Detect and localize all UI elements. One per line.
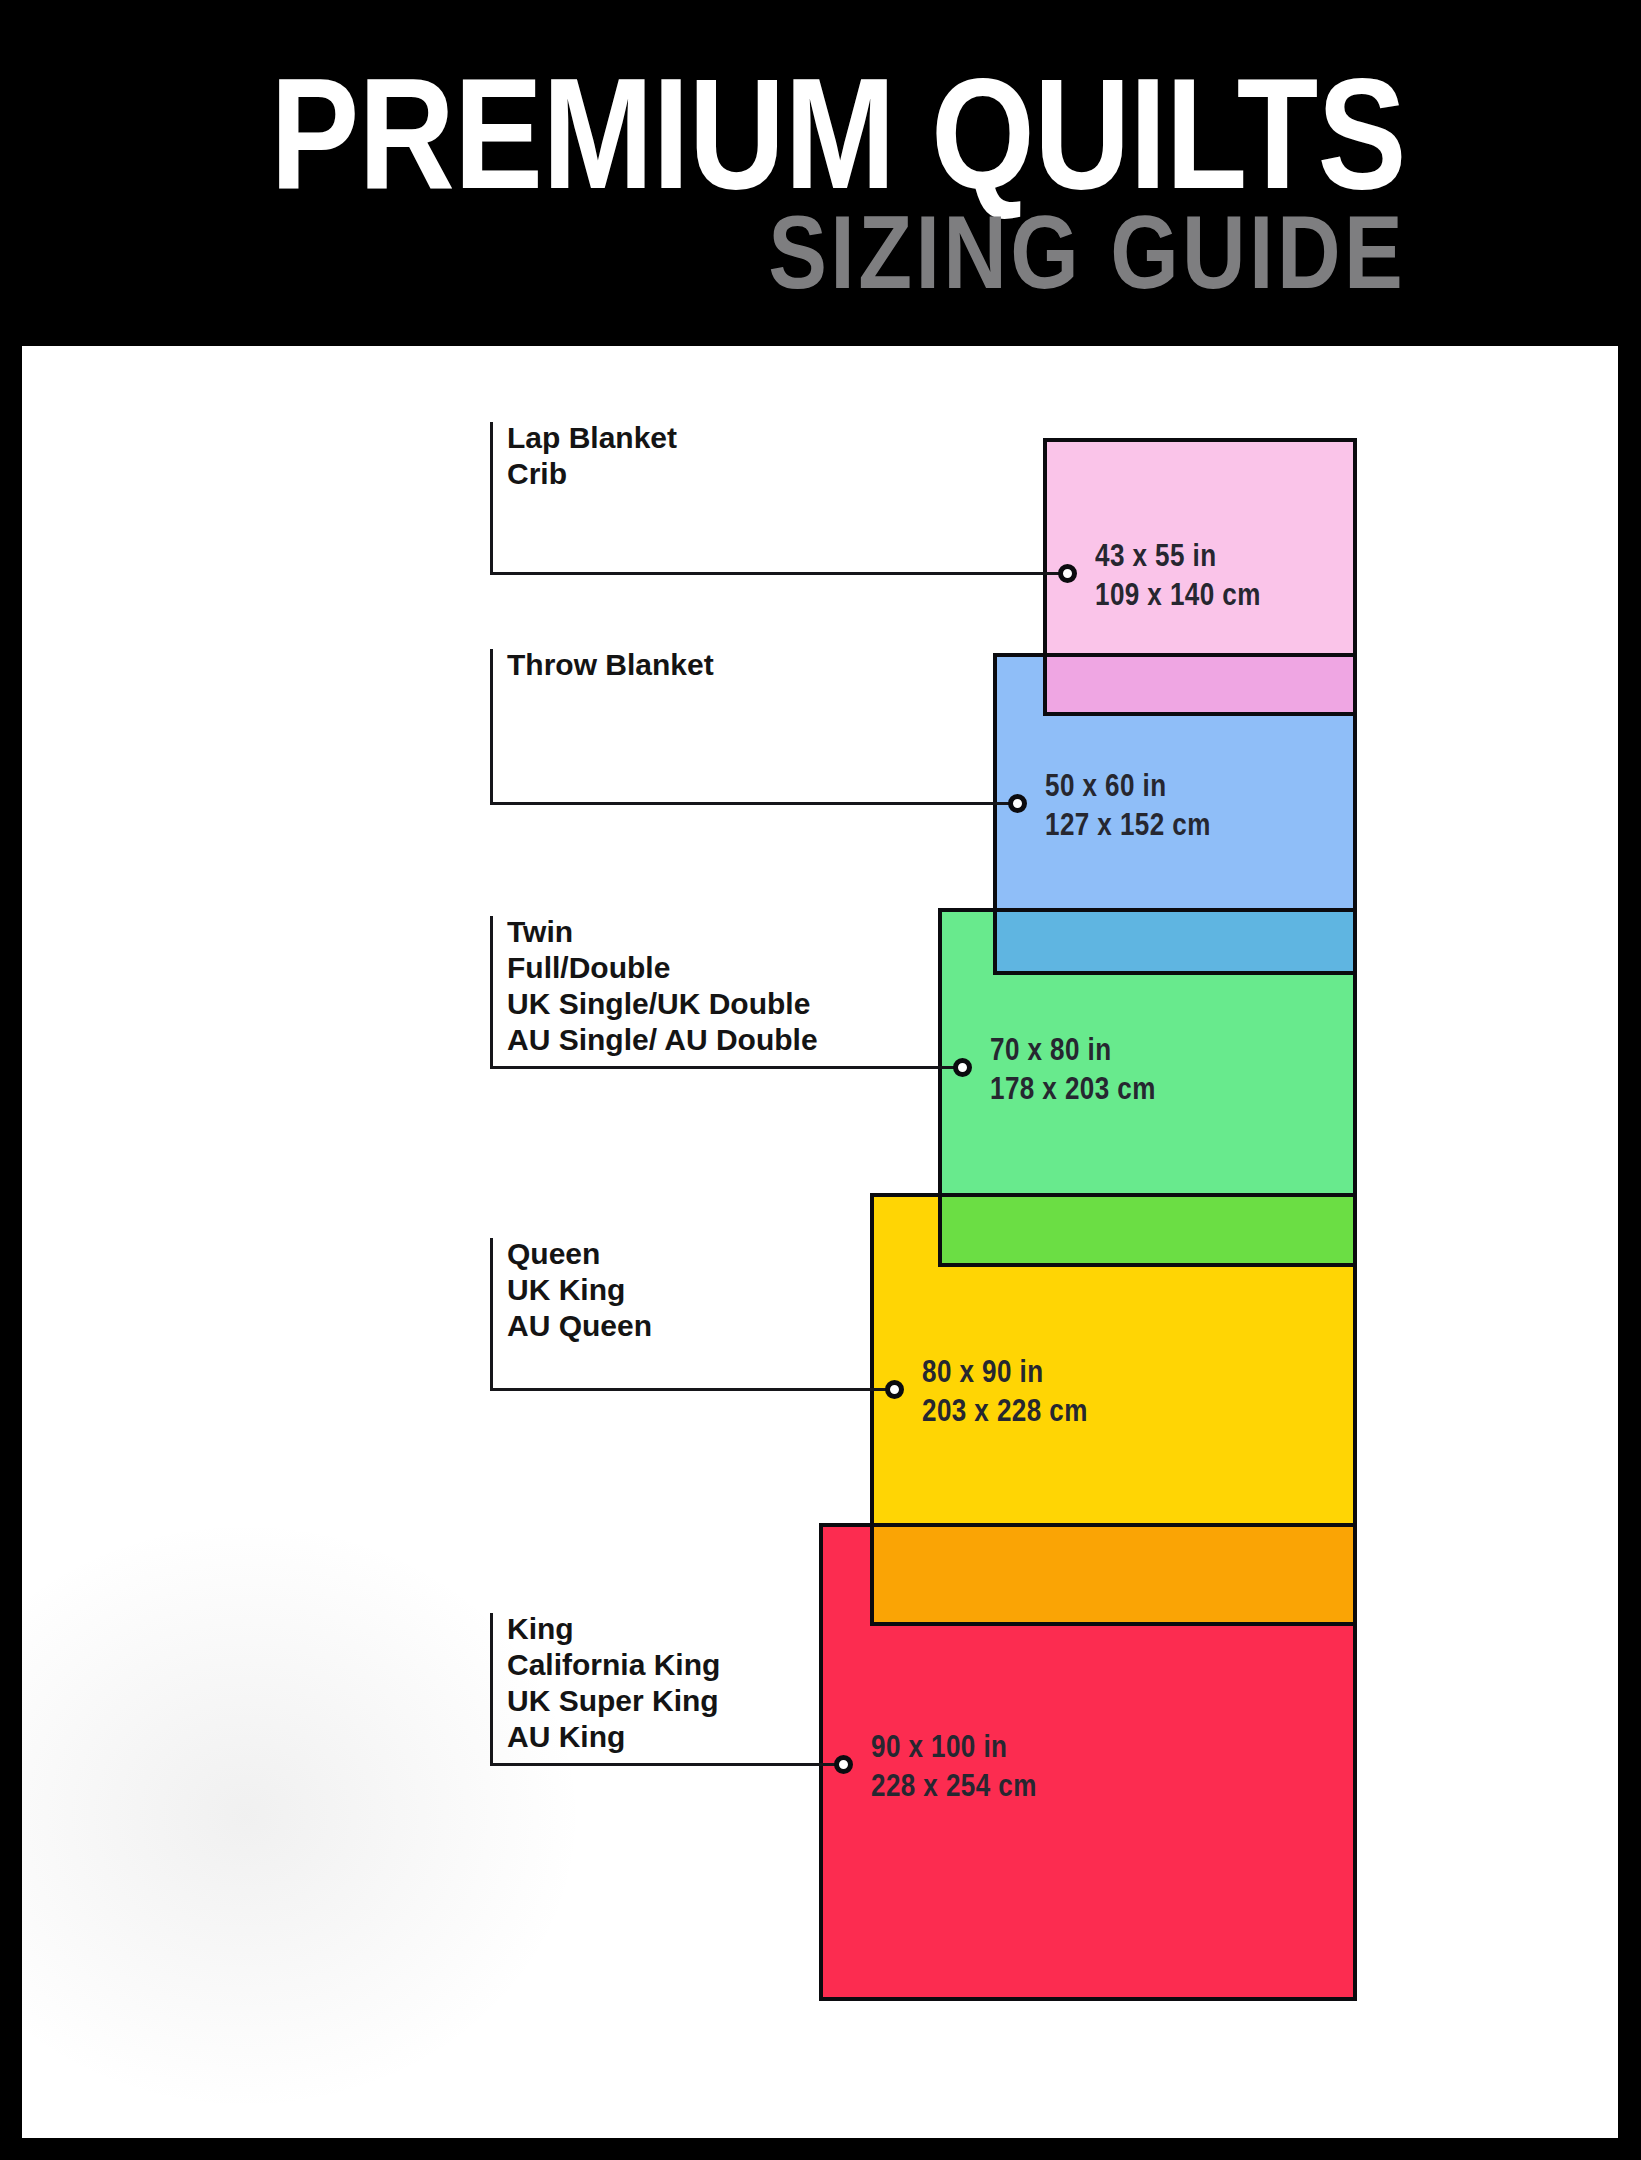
queen-dimensions-label: 80 x 90 in203 x 228 cm: [922, 1352, 1088, 1430]
throw-leader-line-horizontal: [490, 802, 1017, 805]
lap-leader-line-horizontal: [490, 572, 1067, 575]
twin-leader-dot-icon: [953, 1058, 972, 1077]
twin-name-label-line: Twin: [507, 914, 818, 950]
throw-dimensions-label: 50 x 60 in127 x 152 cm: [1045, 766, 1211, 844]
quilt-size-diagram: Lap BlanketCrib43 x 55 in109 x 140 cmThr…: [0, 0, 1641, 2160]
king-name-label: KingCalifornia KingUK Super KingAU King: [507, 1611, 720, 1755]
king-leader-dot-icon: [834, 1755, 853, 1774]
twin-dimensions-label: 70 x 80 in178 x 203 cm: [990, 1030, 1156, 1108]
lap-name-label: Lap BlanketCrib: [507, 420, 677, 492]
queen-name-label-line: Queen: [507, 1236, 652, 1272]
twin-name-label-line: Full/Double: [507, 950, 818, 986]
queen-dimensions-cm: 203 x 228 cm: [922, 1391, 1088, 1430]
twin-name-label-line: UK Single/UK Double: [507, 986, 818, 1022]
throw-dimensions-cm: 127 x 152 cm: [1045, 805, 1211, 844]
king-name-label-line: King: [507, 1611, 720, 1647]
throw-leader-line-vertical: [490, 649, 493, 805]
twin-dimensions-inches: 70 x 80 in: [990, 1030, 1156, 1069]
king-name-label-line: California King: [507, 1647, 720, 1683]
throw-name-label: Throw Blanket: [507, 647, 714, 683]
infographic-page: PREMIUM QUILTS SIZING GUIDE Lap BlanketC…: [0, 0, 1641, 2160]
twin-name-label: TwinFull/DoubleUK Single/UK DoubleAU Sin…: [507, 914, 818, 1058]
lap-dimensions-label: 43 x 55 in109 x 140 cm: [1095, 536, 1261, 614]
lap-dimensions-cm: 109 x 140 cm: [1095, 575, 1261, 614]
queen-leader-dot-icon: [885, 1380, 904, 1399]
twin-name-label-line: AU Single/ AU Double: [507, 1022, 818, 1058]
king-leader-line-vertical: [490, 1613, 493, 1766]
throw-name-label-line: Throw Blanket: [507, 647, 714, 683]
king-dimensions-cm: 228 x 254 cm: [871, 1766, 1037, 1805]
lap-leader-dot-icon: [1058, 564, 1077, 583]
queen-leader-line-vertical: [490, 1238, 493, 1391]
king-name-label-line: AU King: [507, 1719, 720, 1755]
queen-leader-line-horizontal: [490, 1388, 894, 1391]
king-name-label-line: UK Super King: [507, 1683, 720, 1719]
king-dimensions-label: 90 x 100 in228 x 254 cm: [871, 1727, 1037, 1805]
throw-dimensions-inches: 50 x 60 in: [1045, 766, 1211, 805]
queen-name-label-line: AU Queen: [507, 1308, 652, 1344]
lap-name-label-line: Crib: [507, 456, 677, 492]
queen-dimensions-inches: 80 x 90 in: [922, 1352, 1088, 1391]
king-dimensions-inches: 90 x 100 in: [871, 1727, 1037, 1766]
queen-name-label: QueenUK KingAU Queen: [507, 1236, 652, 1344]
lap-dimensions-inches: 43 x 55 in: [1095, 536, 1261, 575]
king-leader-line-horizontal: [490, 1763, 843, 1766]
twin-leader-line-vertical: [490, 916, 493, 1069]
twin-dimensions-cm: 178 x 203 cm: [990, 1069, 1156, 1108]
lap-name-label-line: Lap Blanket: [507, 420, 677, 456]
queen-name-label-line: UK King: [507, 1272, 652, 1308]
twin-leader-line-horizontal: [490, 1066, 962, 1069]
lap-leader-line-vertical: [490, 422, 493, 575]
throw-leader-dot-icon: [1008, 794, 1027, 813]
